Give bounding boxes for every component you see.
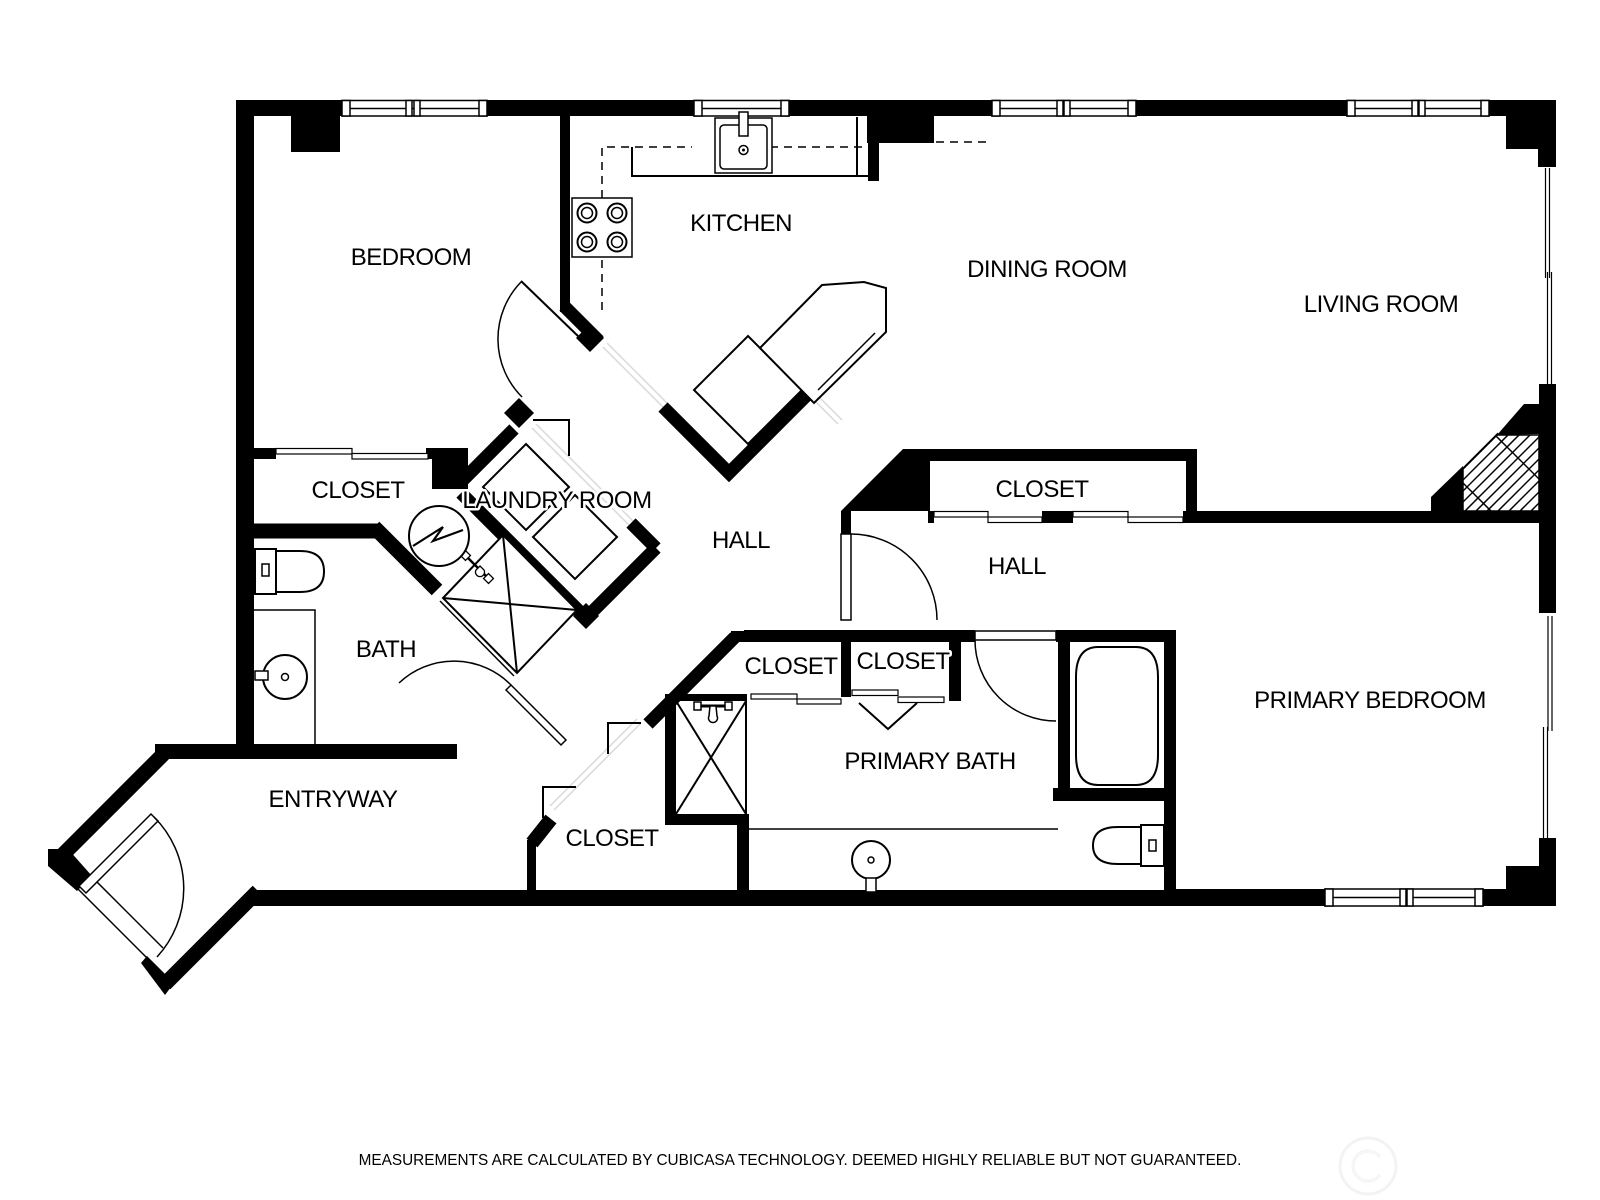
svg-text:MEASUREMENTS ARE CALCULATED BY: MEASUREMENTS ARE CALCULATED BY CUBICASA … xyxy=(359,1152,1242,1169)
svg-text:PRIMARY BATH: PRIMARY BATH xyxy=(844,748,1015,775)
svg-text:CLOSET: CLOSET xyxy=(565,825,659,852)
svg-text:LIVING ROOM: LIVING ROOM xyxy=(1304,291,1459,318)
svg-text:CLOSET: CLOSET xyxy=(744,653,838,680)
svg-text:HALL: HALL xyxy=(712,527,770,554)
svg-text:CLOSET: CLOSET xyxy=(995,476,1089,503)
svg-text:CLOSET: CLOSET xyxy=(311,477,405,504)
svg-text:LAUNDRY ROOM: LAUNDRY ROOM xyxy=(462,487,651,514)
svg-text:DINING ROOM: DINING ROOM xyxy=(967,256,1127,283)
svg-text:CLOSET: CLOSET xyxy=(856,648,950,675)
svg-text:HALL: HALL xyxy=(988,553,1046,580)
svg-text:PRIMARY BEDROOM: PRIMARY BEDROOM xyxy=(1254,687,1486,714)
svg-text:ENTRYWAY: ENTRYWAY xyxy=(269,786,398,813)
svg-text:KITCHEN: KITCHEN xyxy=(690,210,792,237)
svg-text:BEDROOM: BEDROOM xyxy=(351,244,472,271)
svg-text:BATH: BATH xyxy=(356,636,416,663)
